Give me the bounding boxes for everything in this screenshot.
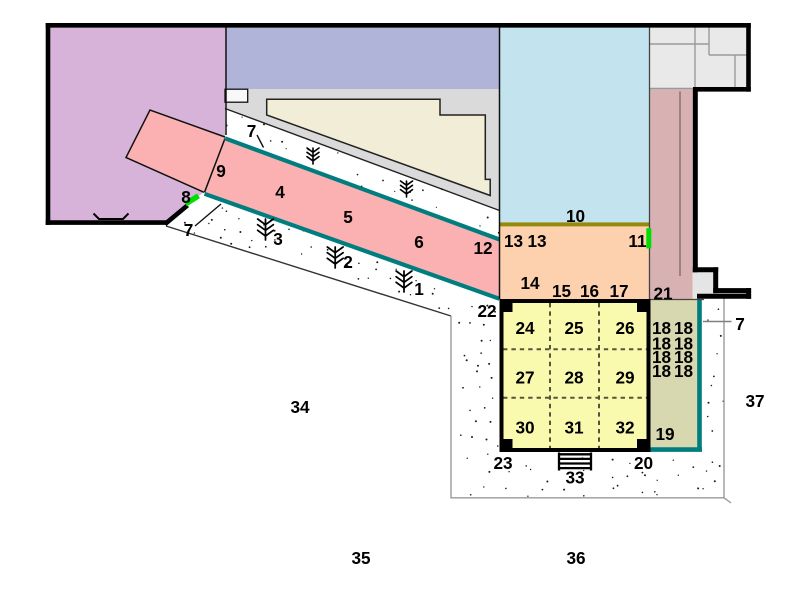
svg-text:35: 35 [351, 548, 371, 568]
svg-text:18: 18 [674, 361, 694, 381]
svg-text:6: 6 [414, 232, 424, 252]
svg-text:11: 11 [628, 231, 647, 251]
svg-text:4: 4 [275, 182, 285, 202]
svg-text:12: 12 [473, 238, 492, 258]
svg-text:2: 2 [343, 252, 353, 272]
svg-text:13: 13 [504, 231, 523, 251]
svg-text:34: 34 [290, 397, 310, 417]
svg-text:21: 21 [653, 284, 673, 304]
svg-text:32: 32 [615, 418, 634, 438]
svg-text:9: 9 [216, 161, 226, 181]
svg-text:7: 7 [247, 121, 257, 141]
svg-text:15: 15 [552, 281, 572, 301]
svg-text:22: 22 [477, 301, 496, 321]
svg-text:37: 37 [745, 391, 764, 411]
svg-text:31: 31 [564, 418, 584, 438]
svg-text:13: 13 [527, 231, 546, 251]
svg-text:7: 7 [184, 220, 194, 240]
svg-text:1: 1 [414, 279, 424, 299]
svg-text:27: 27 [515, 368, 534, 388]
svg-text:8: 8 [181, 187, 191, 207]
svg-text:30: 30 [515, 418, 534, 438]
svg-text:36: 36 [566, 548, 585, 568]
svg-text:10: 10 [566, 206, 585, 226]
svg-text:29: 29 [615, 368, 634, 388]
svg-text:26: 26 [615, 318, 634, 338]
svg-text:5: 5 [343, 207, 353, 227]
svg-text:24: 24 [515, 318, 535, 338]
svg-text:14: 14 [520, 273, 540, 293]
svg-text:7: 7 [735, 314, 745, 334]
svg-text:20: 20 [634, 453, 653, 473]
svg-text:23: 23 [493, 453, 512, 473]
svg-text:16: 16 [580, 281, 599, 301]
svg-text:28: 28 [564, 368, 584, 388]
svg-text:18: 18 [652, 361, 672, 381]
svg-text:25: 25 [564, 318, 584, 338]
svg-text:3: 3 [273, 229, 283, 249]
svg-text:17: 17 [609, 281, 628, 301]
svg-text:33: 33 [565, 468, 584, 488]
svg-text:19: 19 [655, 424, 674, 444]
